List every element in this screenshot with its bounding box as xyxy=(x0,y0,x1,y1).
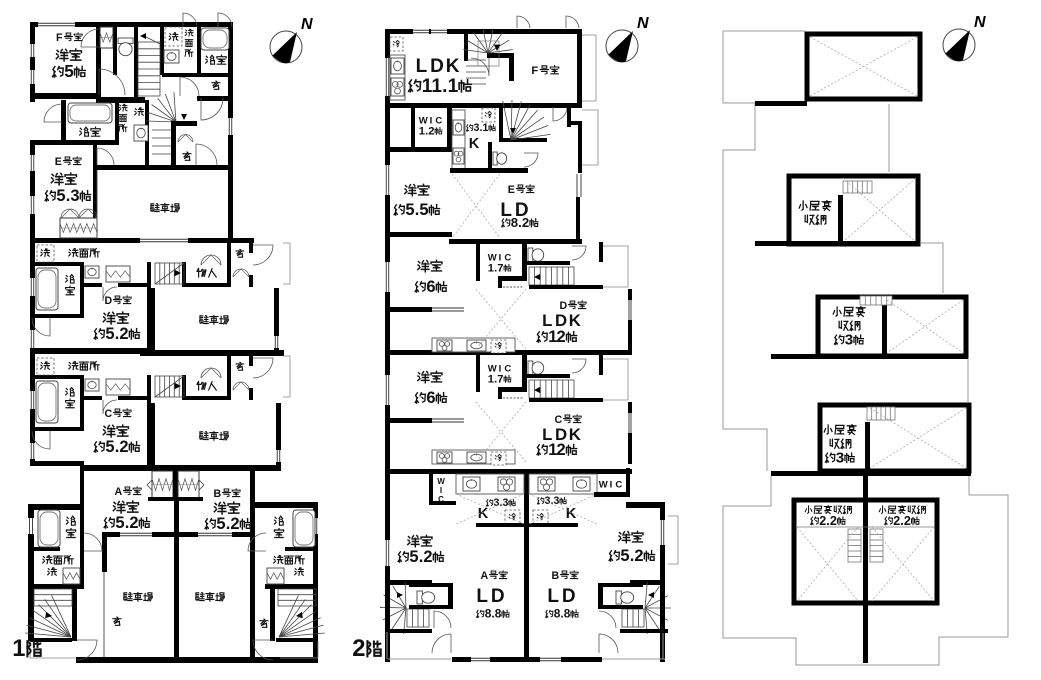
svg-text:7: 7 xyxy=(497,373,503,385)
svg-text:D: D xyxy=(559,300,567,312)
svg-text:5: 5 xyxy=(56,187,65,205)
svg-text:W: W xyxy=(437,477,445,486)
svg-text:C: C xyxy=(435,115,442,126)
svg-text:6: 6 xyxy=(426,278,435,296)
svg-text:C: C xyxy=(554,414,562,426)
svg-text:3: 3 xyxy=(836,450,844,467)
svg-text:K: K xyxy=(566,506,577,522)
svg-text:5: 5 xyxy=(409,548,418,566)
svg-text:C: C xyxy=(615,479,622,490)
svg-text:C: C xyxy=(104,408,112,420)
svg-text:D: D xyxy=(104,295,112,307)
svg-text:L: L xyxy=(476,586,488,607)
svg-text:2: 2 xyxy=(428,125,434,137)
svg-text:B: B xyxy=(213,488,221,500)
svg-text:3: 3 xyxy=(845,332,853,349)
svg-text:1: 1 xyxy=(419,125,425,137)
svg-text:3: 3 xyxy=(70,187,79,205)
svg-text:A: A xyxy=(480,570,488,582)
svg-text:A: A xyxy=(114,486,122,498)
svg-text:2: 2 xyxy=(230,515,239,533)
svg-text:5: 5 xyxy=(105,438,114,456)
svg-text:2: 2 xyxy=(119,325,128,343)
svg-text:2: 2 xyxy=(522,215,529,230)
svg-text:1: 1 xyxy=(12,635,25,662)
svg-text:D: D xyxy=(562,586,576,607)
svg-text:F: F xyxy=(531,65,538,77)
svg-text:L: L xyxy=(547,586,559,607)
svg-text:1: 1 xyxy=(488,262,494,274)
svg-text:2: 2 xyxy=(893,514,900,528)
svg-text:W: W xyxy=(599,479,608,490)
svg-text:5: 5 xyxy=(115,514,124,532)
svg-text:1: 1 xyxy=(448,76,459,97)
svg-text:K: K xyxy=(469,136,480,152)
svg-text:K: K xyxy=(569,425,581,444)
svg-text:2: 2 xyxy=(119,438,128,456)
svg-text:K: K xyxy=(478,506,489,522)
svg-text:1: 1 xyxy=(488,373,494,385)
svg-text:2: 2 xyxy=(352,635,365,662)
svg-text:2: 2 xyxy=(819,514,826,528)
svg-text:C: C xyxy=(438,495,444,504)
svg-text:5: 5 xyxy=(216,515,225,533)
svg-text:5: 5 xyxy=(405,201,414,219)
svg-text:E: E xyxy=(508,184,515,196)
svg-text:2: 2 xyxy=(557,441,566,459)
svg-text:I: I xyxy=(610,479,613,490)
svg-text:1: 1 xyxy=(431,76,442,97)
svg-text:5: 5 xyxy=(64,61,74,81)
svg-text:L: L xyxy=(416,56,428,77)
svg-text:B: B xyxy=(551,570,559,582)
svg-text:K: K xyxy=(446,56,460,77)
svg-text:K: K xyxy=(569,311,581,330)
svg-text:2: 2 xyxy=(634,547,643,565)
svg-text:E: E xyxy=(55,156,62,168)
svg-text:7: 7 xyxy=(497,262,503,274)
svg-text:5: 5 xyxy=(419,201,428,219)
svg-text:2: 2 xyxy=(904,514,911,528)
svg-text:8: 8 xyxy=(564,607,571,621)
svg-text:F: F xyxy=(56,32,63,44)
svg-text:2: 2 xyxy=(557,328,566,346)
svg-text:8: 8 xyxy=(511,215,518,230)
svg-text:D: D xyxy=(491,586,505,607)
svg-text:2: 2 xyxy=(423,548,432,566)
svg-text:C: C xyxy=(504,252,511,263)
svg-text:2: 2 xyxy=(830,514,837,528)
svg-text:3: 3 xyxy=(554,495,560,507)
svg-text:5: 5 xyxy=(620,547,629,565)
svg-text:N: N xyxy=(637,15,649,32)
svg-text:6: 6 xyxy=(426,389,435,407)
svg-text:N: N xyxy=(301,16,313,33)
svg-text:2: 2 xyxy=(129,514,138,532)
svg-text:C: C xyxy=(504,363,511,374)
svg-text:8: 8 xyxy=(495,607,502,621)
svg-text:1: 1 xyxy=(483,122,489,134)
svg-text:5: 5 xyxy=(105,325,114,343)
svg-text:D: D xyxy=(430,56,444,77)
svg-text:3: 3 xyxy=(503,497,509,509)
svg-text:I: I xyxy=(440,486,442,495)
svg-text:N: N xyxy=(974,14,986,31)
